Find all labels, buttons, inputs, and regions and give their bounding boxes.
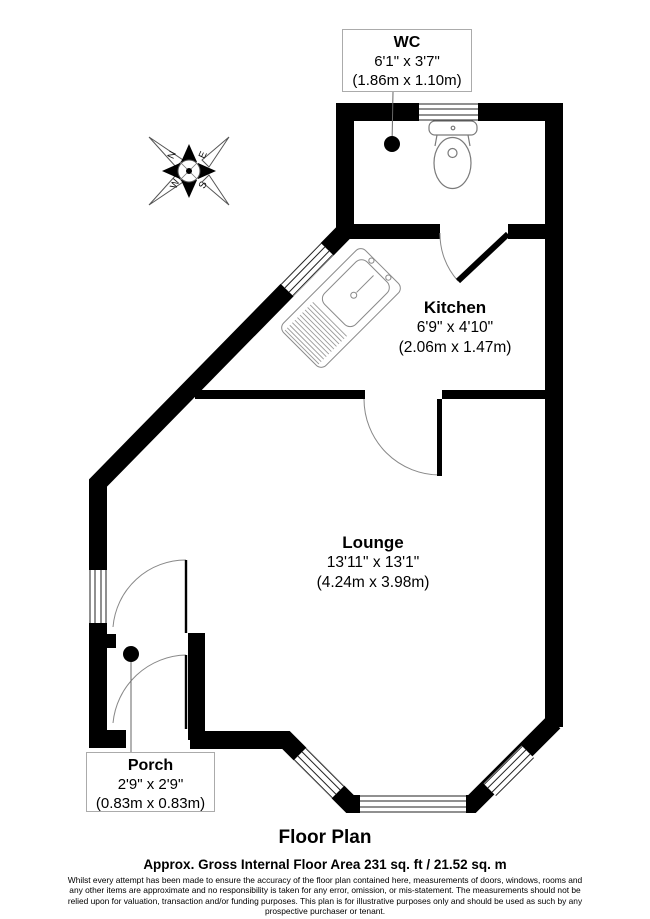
porch-dims-imperial: 2'9" x 2'9"	[87, 775, 214, 794]
toilet-flush	[448, 149, 457, 158]
kitchen-dims-imperial: 6'9" x 4'10"	[375, 318, 535, 338]
porch-right-wall	[188, 633, 205, 740]
toilet-bowl	[434, 138, 471, 189]
kitchen-label: Kitchen 6'9" x 4'10" (2.06m x 1.47m)	[375, 297, 535, 358]
toilet-icon	[429, 121, 477, 189]
compass-triangle-down	[181, 180, 197, 198]
lounge-dims-imperial: 13'11" x 13'1"	[293, 553, 453, 573]
wc-door-arc	[440, 233, 458, 281]
kitchen-diagonal-window-gap	[287, 249, 327, 290]
wall-top-and-right	[336, 112, 554, 727]
wc-partition-right	[508, 224, 545, 239]
compass-triangle-up	[181, 144, 197, 162]
front-door-arc	[113, 655, 186, 723]
lounge-label: Lounge 13'11" x 13'1" (4.24m x 3.98m)	[293, 532, 453, 593]
wc-partition-left	[345, 224, 440, 239]
windows	[90, 104, 534, 812]
lounge-dims-metric: (4.24m x 3.98m)	[293, 573, 453, 593]
floor-area-note: Approx. Gross Internal Floor Area 231 sq…	[0, 857, 650, 872]
porch-dot	[123, 646, 139, 662]
wc-label: WC 6'1" x 3'7" (1.86m x 1.10m)	[342, 29, 472, 92]
wc-dot	[384, 136, 400, 152]
compass-point-nw	[149, 137, 183, 167]
wc-name: WC	[343, 33, 471, 52]
exterior-walls	[98, 103, 554, 804]
toilet-cistern-button	[451, 126, 455, 130]
compass-point-ne	[202, 137, 229, 167]
kitchen-partition-left	[195, 390, 365, 399]
bay-left-window-gap	[300, 754, 338, 792]
porch-name: Porch	[87, 756, 214, 775]
kitchen-name: Kitchen	[375, 297, 535, 318]
wc-door-leaf	[458, 234, 508, 281]
page-title: Floor Plan	[0, 827, 650, 849]
porch-label: Porch 2'9" x 2'9" (0.83m x 0.83m)	[86, 752, 215, 812]
kitchen-partition-right	[442, 390, 545, 399]
lounge-name: Lounge	[293, 532, 453, 553]
compass-center-dot	[186, 168, 192, 174]
compass-triangle-left	[162, 163, 180, 179]
compass-rose-icon: N E W S	[149, 137, 229, 205]
porch-lounge-door-arc	[113, 560, 186, 627]
porch-door-nub	[107, 634, 116, 648]
kitchen-dims-metric: (2.06m x 1.47m)	[375, 338, 535, 358]
kitchen-door-arc	[364, 399, 440, 475]
wc-dims-imperial: 6'1" x 3'7"	[343, 52, 471, 71]
wc-dims-metric: (1.86m x 1.10m)	[343, 71, 471, 90]
porch-dims-metric: (0.83m x 0.83m)	[87, 794, 214, 813]
disclaimer-text: Whilst every attempt has been made to en…	[67, 875, 583, 916]
floor-plan-page: N E W S WC 6'1" x 3'7" (1.86m x 1.10m) K…	[0, 0, 650, 919]
